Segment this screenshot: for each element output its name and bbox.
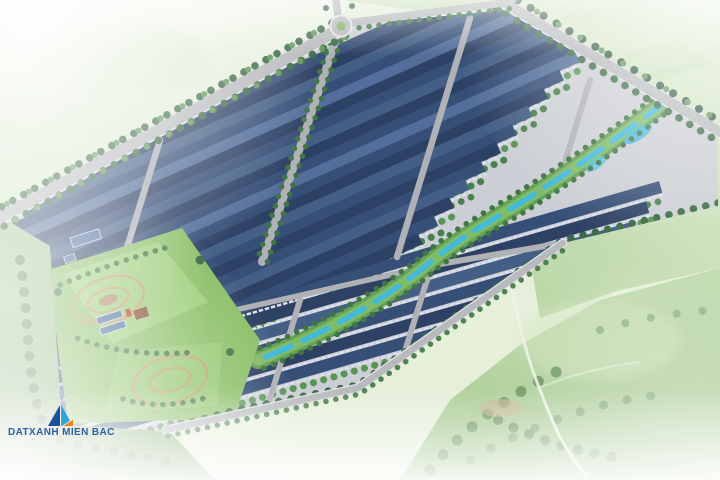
datxanh-logo-watermark: DATXANH MIEN BAC <box>8 404 112 438</box>
datxanh-logo-text: DATXANH MIEN BAC <box>8 427 112 438</box>
masterplan-rendering: DATXANH MIEN BAC <box>0 0 720 480</box>
datxanh-triangle-icon <box>48 404 73 426</box>
